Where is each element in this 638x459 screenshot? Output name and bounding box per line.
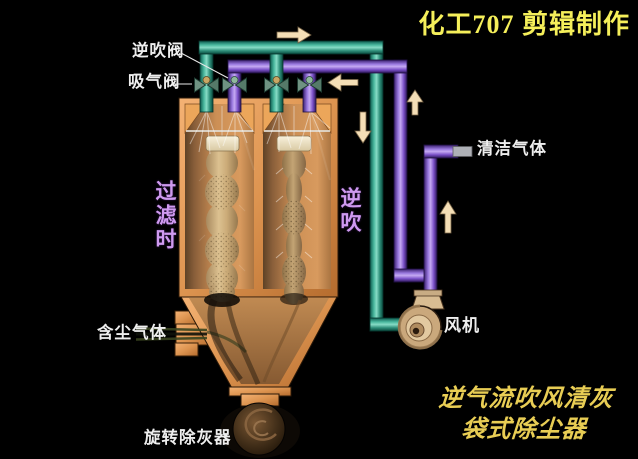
label-rotary-ash-remover: 旋转除灰器	[144, 429, 232, 447]
label-clean-gas: 清洁气体	[477, 140, 547, 158]
label-fan: 风机	[444, 317, 480, 336]
label-filtering-state: 过滤时	[150, 180, 180, 252]
label-reverse-blowing-state: 逆吹	[335, 187, 365, 235]
baghouse-vessel	[136, 98, 338, 458]
caption-line-1: 逆气流吹风清灰	[418, 384, 634, 415]
clean-gas-outlet-end	[453, 147, 472, 157]
filter-bag-1	[205, 136, 239, 302]
diagram-caption: 逆气流吹风清灰 袋式除尘器	[416, 384, 634, 446]
suction-header	[199, 41, 383, 54]
reverse-blow-header	[228, 60, 407, 73]
diagram-stage: 化工707 剪辑制作 逆吹阀 吸气阀 清洁气体 风机 含尘气体 旋转除灰器 过滤…	[0, 0, 638, 459]
label-suction-valve: 吸气阀	[128, 73, 181, 91]
caption-line-2: 袋式除尘器	[416, 415, 632, 446]
label-dusty-gas: 含尘气体	[97, 324, 167, 342]
flow-arrow-up2-icon	[440, 201, 456, 233]
flow-arrow-down-icon	[355, 112, 371, 143]
flow-arrow-left-icon	[328, 74, 358, 91]
rotary-ash-remover	[220, 403, 300, 458]
flow-arrow-up-icon	[407, 90, 423, 115]
valves	[195, 77, 322, 93]
fan	[399, 290, 444, 348]
clean-gas-riser	[424, 145, 437, 300]
label-reverse-blow-valve: 逆吹阀	[132, 42, 185, 60]
watermark-text: 化工707 剪辑制作	[418, 4, 630, 41]
